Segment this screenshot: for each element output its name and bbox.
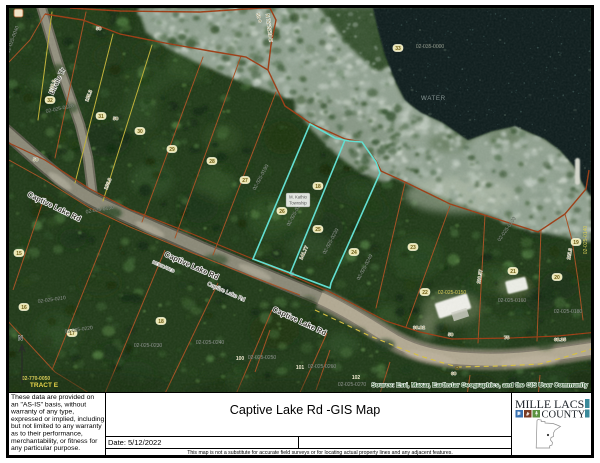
svg-text:100: 100 [236,356,245,362]
svg-text:28: 28 [209,159,215,165]
svg-text:02-035-0000: 02-035-0000 [416,44,445,50]
svg-text:02-025-0260: 02-025-0260 [308,364,337,370]
svg-text:29: 29 [169,147,175,153]
svg-text:23: 23 [410,245,416,251]
svg-text:50: 50 [113,116,119,122]
svg-text:Township: Township [289,201,307,206]
svg-text:31: 31 [98,114,104,120]
svg-text:02-025-0180: 02-025-0180 [554,309,583,315]
svg-text:21: 21 [510,269,516,275]
svg-text:38.02: 38.02 [413,325,425,331]
svg-text:32: 32 [47,98,53,104]
svg-text:02-025-0240: 02-025-0240 [196,340,225,346]
svg-text:02-025-0230: 02-025-0230 [134,343,163,349]
svg-text:15: 15 [16,251,22,257]
svg-text:25: 25 [315,227,321,233]
svg-text:02-025-0160: 02-025-0160 [498,298,527,304]
svg-text:N: N [18,335,23,342]
svg-text:27: 27 [242,178,248,184]
svg-text:02-025-0250: 02-025-0250 [248,355,277,361]
svg-text:33: 33 [395,46,401,52]
svg-text:50: 50 [33,157,39,163]
svg-text:This map is not a substitute f: This map is not a substitute for accurat… [187,450,453,456]
svg-text:Captive Lake Rd -GIS Map: Captive Lake Rd -GIS Map [230,403,381,417]
svg-text:16: 16 [21,305,27,311]
svg-text:22: 22 [422,290,428,296]
svg-text:18: 18 [315,184,321,190]
svg-text:Date: 5/12/2022: Date: 5/12/2022 [108,438,161,447]
svg-text:102: 102 [352,375,361,381]
svg-text:Source: Esri, Maxar, Earthstar: Source: Esri, Maxar, Earthstar Geographi… [371,382,588,389]
svg-text:30: 30 [137,129,143,135]
svg-text:26: 26 [279,209,285,215]
svg-text:TRACT E: TRACT E [30,382,59,389]
svg-text:20: 20 [554,275,560,281]
svg-text:75: 75 [504,335,510,341]
svg-text:COUNTY: COUNTY [542,409,586,420]
svg-text:02-025-0140: 02-025-0140 [583,226,589,255]
svg-text:101: 101 [296,365,305,371]
svg-text:M. Kathio: M. Kathio [289,195,307,200]
svg-text:02-025-0270: 02-025-0270 [338,382,367,388]
svg-text:50: 50 [448,332,454,338]
svg-text:68.35: 68.35 [554,337,566,343]
svg-text:WATER: WATER [421,95,446,102]
svg-text:19: 19 [573,240,579,246]
svg-text:24: 24 [351,250,357,256]
svg-text:02-025-0150: 02-025-0150 [438,290,467,296]
svg-text:18: 18 [158,319,164,325]
svg-text:50: 50 [96,26,102,32]
svg-text:60: 60 [451,371,457,377]
